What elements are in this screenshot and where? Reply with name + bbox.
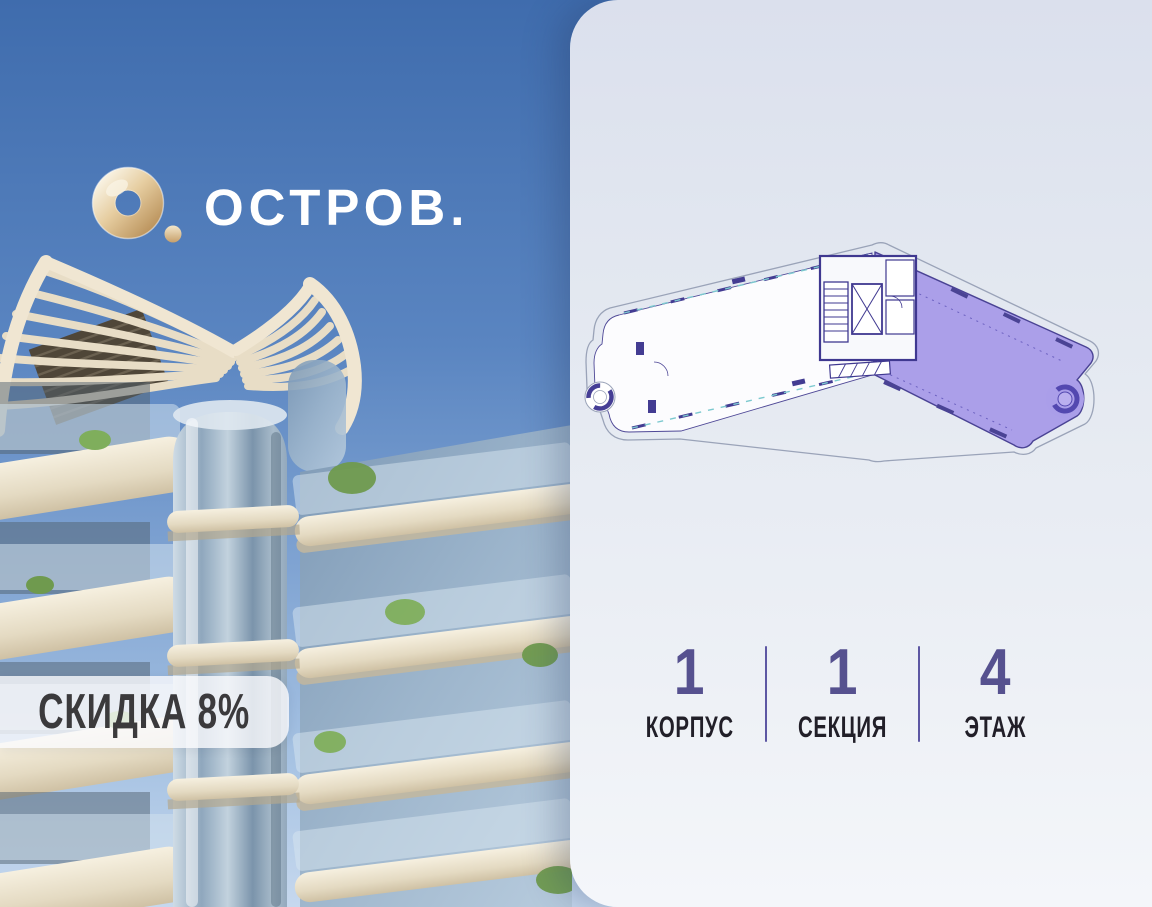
plant: [328, 462, 376, 494]
discount-badge: СКИДКА 8%: [0, 676, 289, 748]
plant: [385, 599, 425, 625]
stat-section-label: СЕКЦИЯ: [767, 712, 918, 744]
stat-floor: 4 ЭТАЖ: [920, 640, 1071, 744]
plant: [26, 576, 54, 594]
stat-building-label: КОРПУС: [614, 712, 765, 744]
plant: [79, 430, 111, 450]
plant: [522, 643, 558, 667]
discount-label: СКИДКА 8%: [39, 684, 251, 740]
stat-section-value: 1: [767, 640, 918, 704]
brand-name: ОСТРОВ.: [204, 178, 469, 237]
stat-floor-label: ЭТАЖ: [920, 712, 1071, 744]
left-balcony-icon: [585, 382, 616, 413]
plant: [314, 731, 346, 753]
building-photo: ОСТРОВ. СКИДКА 8%: [0, 0, 572, 907]
building-photo-art: [0, 0, 572, 907]
stat-section: 1 СЕКЦИЯ: [767, 640, 918, 744]
glass-volume: [288, 360, 346, 472]
stat-floor-value: 4: [920, 640, 1071, 704]
promo-card: ОСТРОВ. СКИДКА 8%: [0, 0, 1152, 907]
right-tower: [292, 425, 572, 907]
info-panel: 1 КОРПУС 1 СЕКЦИЯ 4 ЭТАЖ: [570, 0, 1152, 907]
stat-building-value: 1: [614, 640, 765, 704]
glass-elevator-cylinder: [167, 400, 300, 907]
gold-ring-logo-icon: [84, 158, 188, 262]
stat-building: 1 КОРПУС: [614, 640, 765, 744]
building-core: [820, 256, 916, 378]
left-balcony-stack: [0, 382, 201, 907]
right-balcony-icon: [1046, 380, 1084, 418]
unit-stats: 1 КОРПУС 1 СЕКЦИЯ 4 ЭТАЖ: [614, 640, 1071, 744]
floor-plan: [584, 242, 1142, 464]
